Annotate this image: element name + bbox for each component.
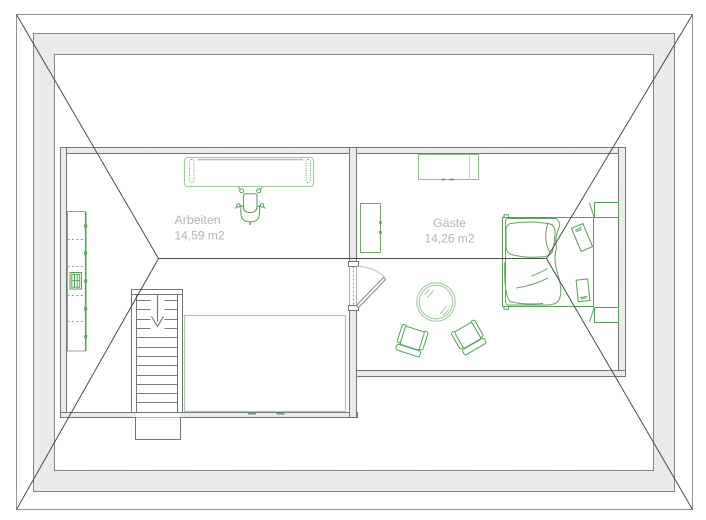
svg-text:Arbeiten: Arbeiten	[175, 213, 221, 227]
svg-text:14,59 m2: 14,59 m2	[175, 228, 225, 242]
svg-text:Gäste: Gäste	[433, 216, 466, 230]
svg-text:14,26 m2: 14,26 m2	[425, 231, 475, 245]
